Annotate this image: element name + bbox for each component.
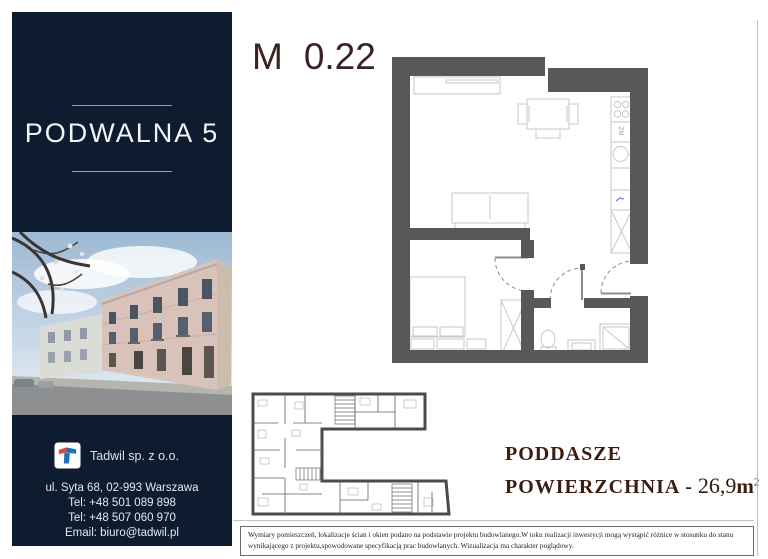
floor-name: PODDASZE (505, 443, 622, 466)
area-line: POWIERZCHNIA - 26,9m2 (505, 473, 759, 499)
title-rule-top (72, 105, 172, 106)
contact-block: ul. Syta 68, 02-993 Warszawa Tel: +48 50… (12, 481, 232, 541)
contact-phone-1: Tel: +48 501 089 898 (12, 496, 232, 511)
contact-phone-2: Tel: +48 507 060 970 (12, 511, 232, 526)
tadwil-logo-icon (54, 442, 81, 469)
area-unit: m (736, 474, 754, 498)
building-photo-illustration (12, 232, 232, 415)
area-label: POWIERZCHNIA - (505, 476, 693, 498)
project-title: PODWALNA 5 (12, 118, 232, 149)
content-divider-line (233, 520, 754, 521)
company-block: Tadwil sp. z o.o. (12, 442, 232, 470)
kitchen-zm-label: ZM (617, 127, 623, 136)
company-name: Tadwil sp. z o.o. (90, 449, 179, 463)
main-floorplan: ZM (385, 50, 655, 370)
building-photo (12, 232, 232, 415)
page-right-border (757, 20, 758, 556)
overview-floorplan (248, 390, 453, 520)
contact-address: ul. Syta 68, 02-993 Warszawa (12, 481, 232, 496)
title-rule-bottom (72, 171, 172, 172)
unit-number: 0.22 (304, 36, 376, 78)
unit-letter: M (252, 36, 283, 78)
disclaimer-text: Wymiary pomieszczeń, lokalizacje ścian i… (240, 526, 754, 556)
area-value: 26,9 (698, 473, 737, 498)
contact-email: Email: biuro@tadwil.pl (12, 526, 232, 541)
unit-label: M 0.22 (252, 36, 376, 78)
sidebar: PODWALNA 5 (12, 12, 232, 546)
